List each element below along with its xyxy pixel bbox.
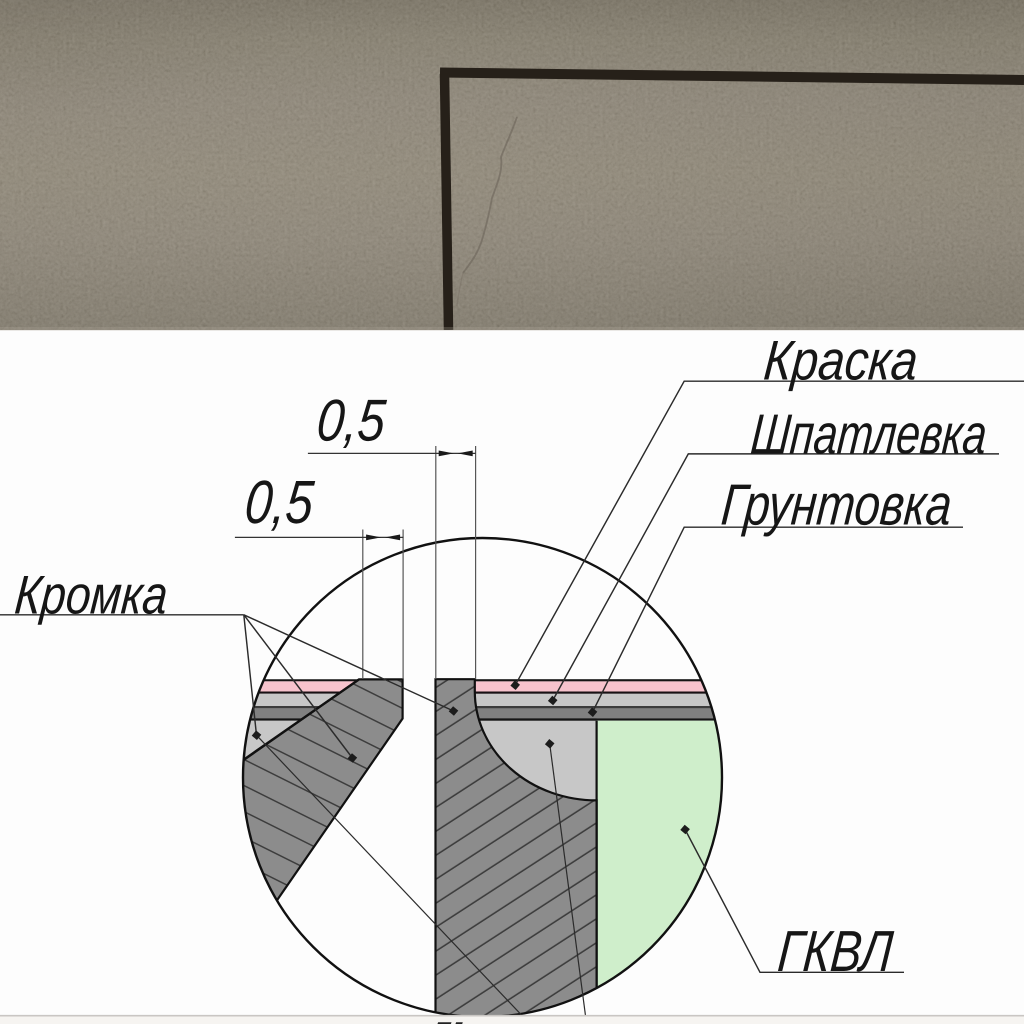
svg-text:0,5: 0,5 xyxy=(314,387,389,454)
svg-text:ГКВЛ: ГКВЛ xyxy=(775,919,895,984)
svg-text:Кромка: Кромка xyxy=(12,564,170,625)
svg-text:Грунтовка: Грунтовка xyxy=(719,473,955,538)
svg-text:0,5: 0,5 xyxy=(242,468,317,536)
svg-text:Краска: Краска xyxy=(761,329,920,392)
svg-text:Шпатлевка: Шпатлевка xyxy=(748,403,989,466)
